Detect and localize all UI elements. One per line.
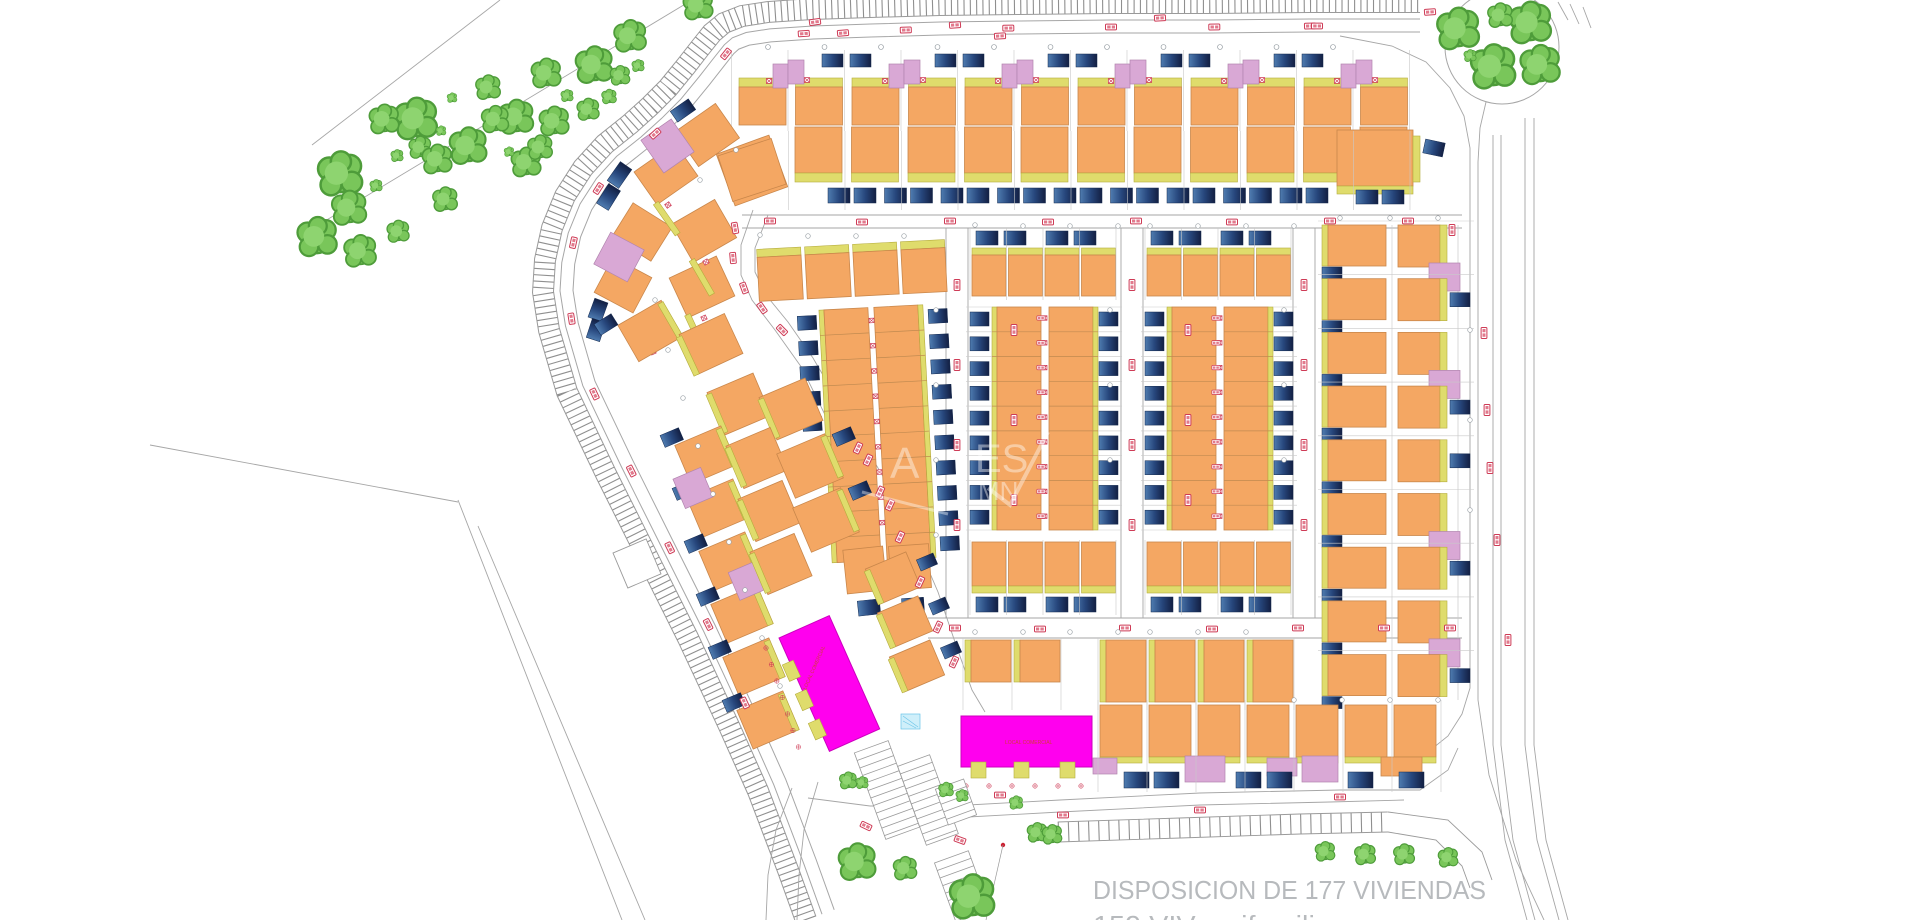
svg-text:A: A <box>890 439 920 488</box>
svg-text:DISPOSICION DE 177 VIVIENDA: DISPOSICION DE 177 VIVIENDAS <box>1093 875 1486 905</box>
svg-text:159 VIV. unifamiliares: 159 VIV. unifamiliares <box>1093 910 1371 920</box>
svg-text:ES: ES <box>975 437 1028 481</box>
svg-text:LOCAL COMERCIAL: LOCAL COMERCIAL <box>1005 740 1053 746</box>
